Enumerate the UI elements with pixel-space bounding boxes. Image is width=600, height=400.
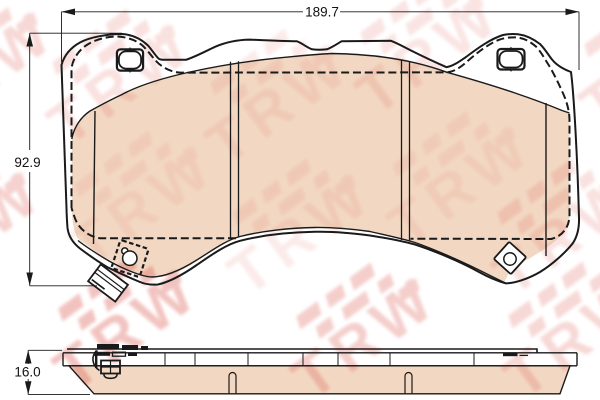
svg-text:92.9: 92.9 (14, 155, 40, 170)
svg-text:189.7: 189.7 (305, 4, 339, 19)
svg-text:16.0: 16.0 (14, 364, 40, 379)
